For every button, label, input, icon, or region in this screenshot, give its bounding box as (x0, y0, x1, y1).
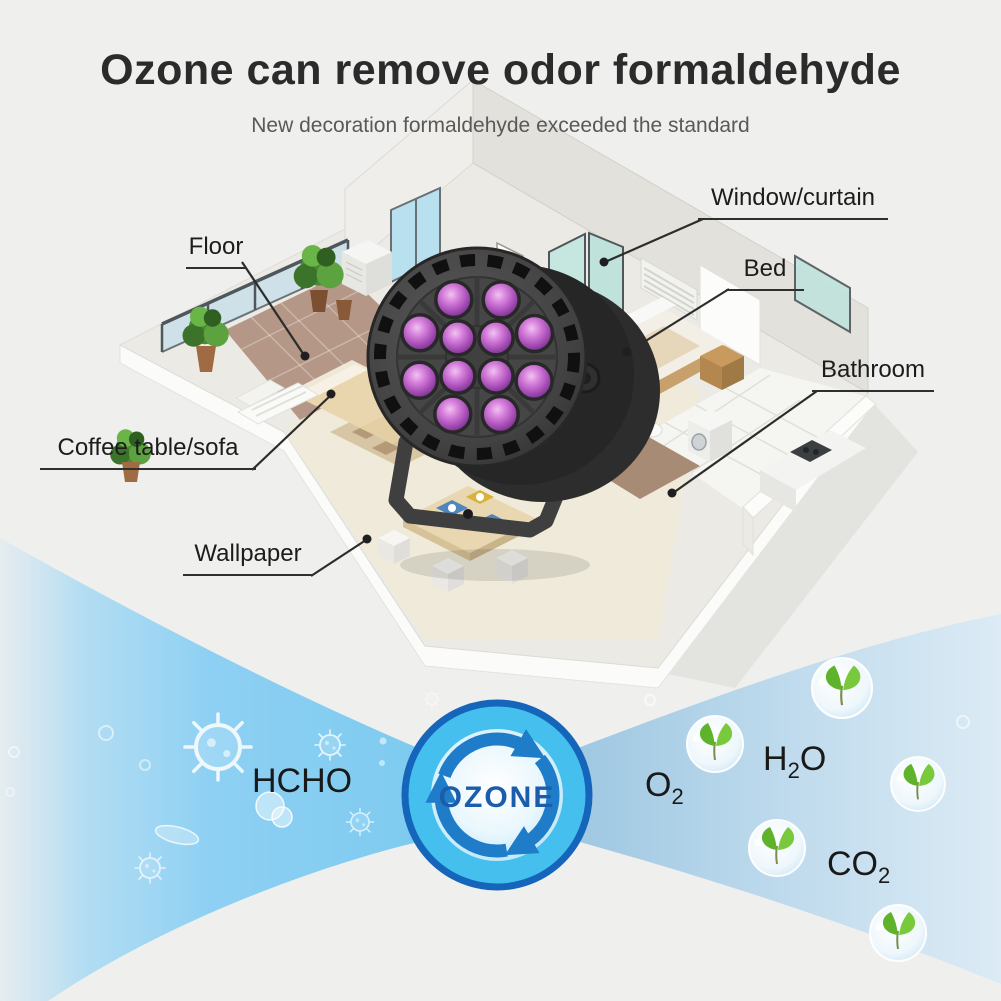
label-floor: Floor (186, 233, 246, 269)
sprout-bubble-icon (687, 716, 743, 772)
label-wallpaper: Wallpaper (183, 540, 313, 576)
sprout-bubble-icon (812, 658, 872, 718)
sprout-bubble-icon (870, 905, 926, 961)
label-window-curtain: Window/curtain (698, 184, 888, 220)
hcho-label: HCHO (252, 762, 352, 801)
label-bathroom: Bathroom (812, 356, 934, 392)
co2-label: CO2 (827, 845, 890, 884)
germ-icon (315, 730, 345, 760)
page-subtitle: New decoration formaldehyde exceeded the… (0, 114, 1001, 138)
o2-label: O2 (645, 766, 684, 805)
page-title: Ozone can remove odor formaldehyde (0, 46, 1001, 95)
label-bed: Bed (726, 255, 804, 291)
germ-icon (185, 714, 251, 780)
germ-icon (424, 691, 441, 708)
product-infographic: Ozone can remove odor formaldehyde New d… (0, 0, 1001, 1001)
sprout-bubble-icon (891, 757, 945, 811)
germ-icon (347, 809, 374, 836)
label-coffee-table-sofa: Coffee table/sofa (40, 434, 256, 470)
washing-machine (688, 409, 732, 462)
germ-icon (135, 853, 165, 883)
h2o-label: H2O (763, 740, 826, 779)
hcho-band (0, 538, 418, 1001)
ozone-label: OZONE (407, 781, 587, 815)
sprout-bubble-icon (749, 820, 805, 876)
